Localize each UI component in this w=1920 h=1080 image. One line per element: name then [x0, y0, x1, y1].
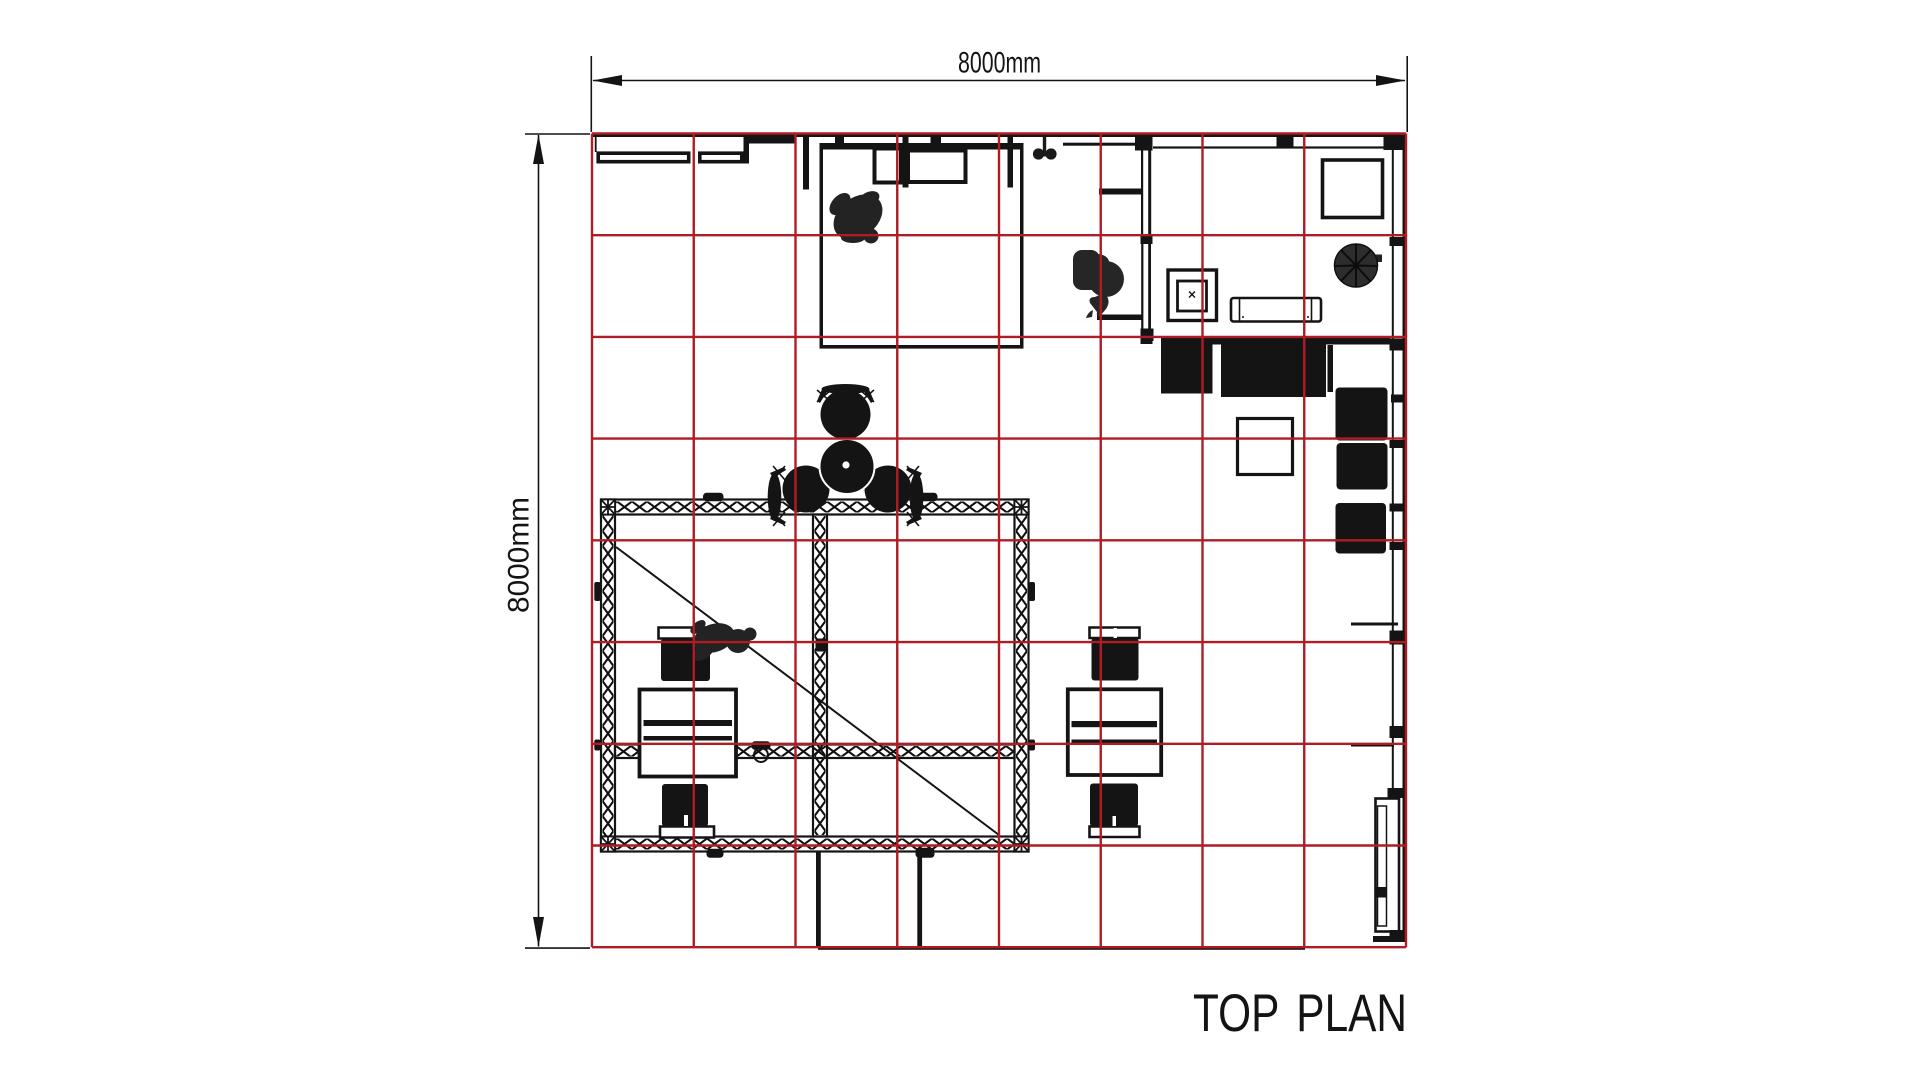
svg-text:8000mm: 8000mm — [958, 47, 1041, 80]
svg-text:8000mm: 8000mm — [503, 497, 536, 613]
svg-text:TOP PLAN: TOP PLAN — [1193, 984, 1407, 1043]
